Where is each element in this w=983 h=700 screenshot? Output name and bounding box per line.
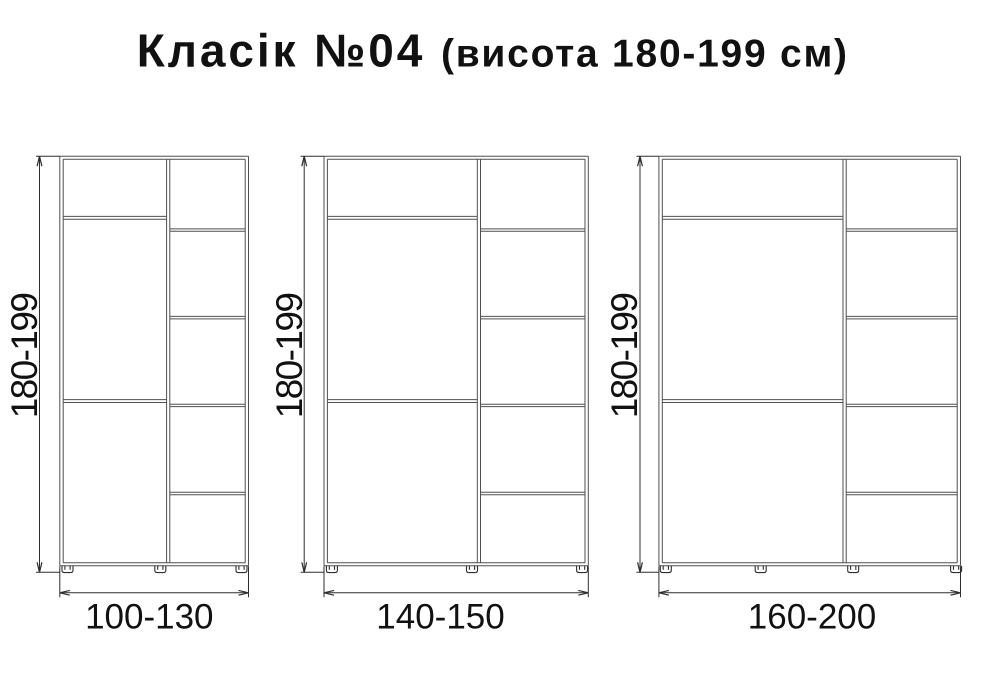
svg-text:100-130: 100-130 [85, 598, 213, 637]
svg-text:180-199: 180-199 [604, 294, 645, 419]
svg-text:Класік №04 (висота 180-199 см): Класік №04 (висота 180-199 см) [137, 25, 849, 77]
svg-text:180-199: 180-199 [4, 294, 45, 419]
svg-text:140-150: 140-150 [376, 598, 504, 637]
svg-text:160-200: 160-200 [748, 598, 876, 637]
svg-text:180-199: 180-199 [269, 294, 310, 419]
